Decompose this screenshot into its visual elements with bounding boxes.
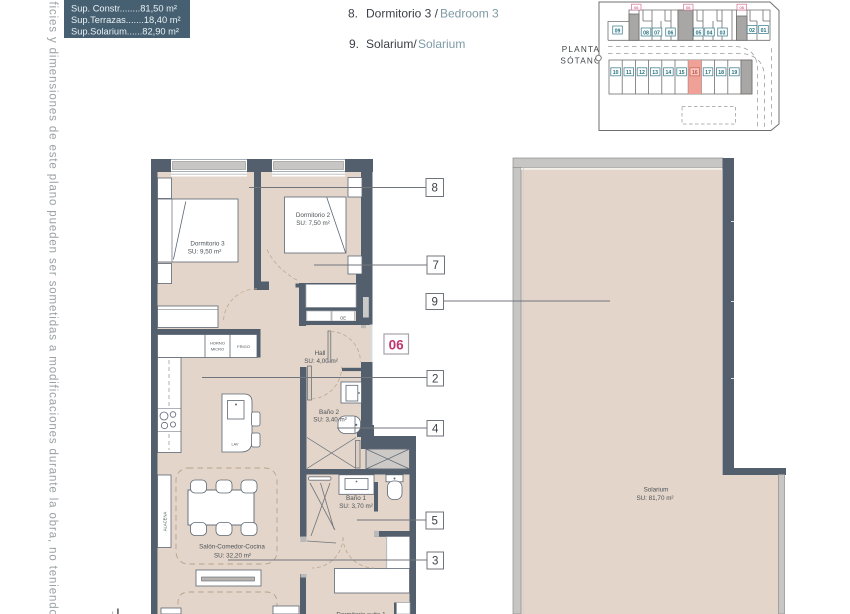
svg-text:06: 06 <box>739 5 744 10</box>
svg-text:09: 09 <box>615 28 621 34</box>
svg-text:HORNO: HORNO <box>210 341 225 346</box>
svg-text:Dormitorio 2: Dormitorio 2 <box>296 212 331 219</box>
svg-text:LAV: LAV <box>232 443 239 447</box>
svg-text:SU: 7,50 m²: SU: 7,50 m² <box>296 220 330 227</box>
svg-text:Baño 1: Baño 1 <box>346 495 366 502</box>
svg-text:2: 2 <box>432 374 438 386</box>
svg-text:8: 8 <box>431 183 437 195</box>
svg-text:PLANTA: PLANTA <box>562 45 600 54</box>
svg-text:3: 3 <box>432 556 438 568</box>
svg-text:SU: 9,50 m²: SU: 9,50 m² <box>188 249 222 256</box>
svg-text:Hall: Hall <box>315 350 326 357</box>
svg-text:10: 10 <box>613 70 619 76</box>
svg-text:06: 06 <box>686 5 691 10</box>
svg-text:13: 13 <box>652 70 658 76</box>
svg-text:ficies y dimensiones de este p: ficies y dimensiones de este plano puede… <box>47 2 59 614</box>
svg-text:06: 06 <box>668 30 674 36</box>
svg-text:4: 4 <box>432 424 439 436</box>
svg-text:08: 08 <box>643 30 649 36</box>
svg-text:04: 04 <box>707 30 713 36</box>
svg-text:SU: 3,70 m²: SU: 3,70 m² <box>339 503 373 510</box>
svg-text:06: 06 <box>634 5 639 10</box>
svg-text:Bedroom 3: Bedroom 3 <box>440 7 499 21</box>
svg-text:Baño 2: Baño 2 <box>319 409 339 416</box>
svg-text:Sup.Terrazas.......18,40 m²: Sup.Terrazas.......18,40 m² <box>71 15 181 25</box>
svg-text:Salón-Comedor-Cocina: Salón-Comedor-Cocina <box>199 544 265 551</box>
svg-text:ALACENA: ALACENA <box>162 512 167 532</box>
svg-text:14: 14 <box>666 70 672 76</box>
svg-text:11: 11 <box>626 70 632 76</box>
svg-text:5: 5 <box>431 516 437 528</box>
svg-text:05: 05 <box>696 30 702 36</box>
svg-text:18: 18 <box>718 70 724 76</box>
svg-text:12: 12 <box>639 70 645 76</box>
svg-text:Sup. Constr........81,50 m²: Sup. Constr........81,50 m² <box>71 4 177 14</box>
svg-text:MICRO: MICRO <box>211 347 224 352</box>
svg-text:Solarium/: Solarium/ <box>366 37 417 51</box>
svg-text:OE: OE <box>340 316 346 321</box>
svg-text:8.: 8. <box>348 7 358 21</box>
svg-text:03: 03 <box>720 30 726 36</box>
svg-text:Sup.Solarium......82,90 m²: Sup.Solarium......82,90 m² <box>71 27 179 37</box>
svg-text:SU: 32,20 m²: SU: 32,20 m² <box>214 553 251 560</box>
svg-text:9: 9 <box>431 297 437 309</box>
svg-text:07: 07 <box>654 30 660 36</box>
svg-text:15: 15 <box>679 70 685 76</box>
svg-text:17: 17 <box>705 70 711 76</box>
svg-text:02: 02 <box>749 28 755 34</box>
svg-text:Dormitorio 3 /: Dormitorio 3 / <box>366 7 439 21</box>
svg-text:9.: 9. <box>349 37 359 51</box>
svg-text:SU: 3,40 m²: SU: 3,40 m² <box>313 417 347 424</box>
svg-text:SU: 81,70 m²: SU: 81,70 m² <box>636 495 673 502</box>
svg-text:SU: 4,00 m²: SU: 4,00 m² <box>304 358 338 365</box>
svg-text:Solarium: Solarium <box>418 37 465 51</box>
svg-text:Dormitorio 3: Dormitorio 3 <box>190 241 225 248</box>
svg-text:16: 16 <box>692 70 698 76</box>
svg-text:19: 19 <box>732 70 738 76</box>
svg-text:06: 06 <box>389 338 405 353</box>
svg-text:01: 01 <box>761 28 767 34</box>
svg-text:FRIGO: FRIGO <box>237 344 250 349</box>
svg-text:7: 7 <box>432 260 438 272</box>
svg-text:Solarium: Solarium <box>644 487 669 494</box>
